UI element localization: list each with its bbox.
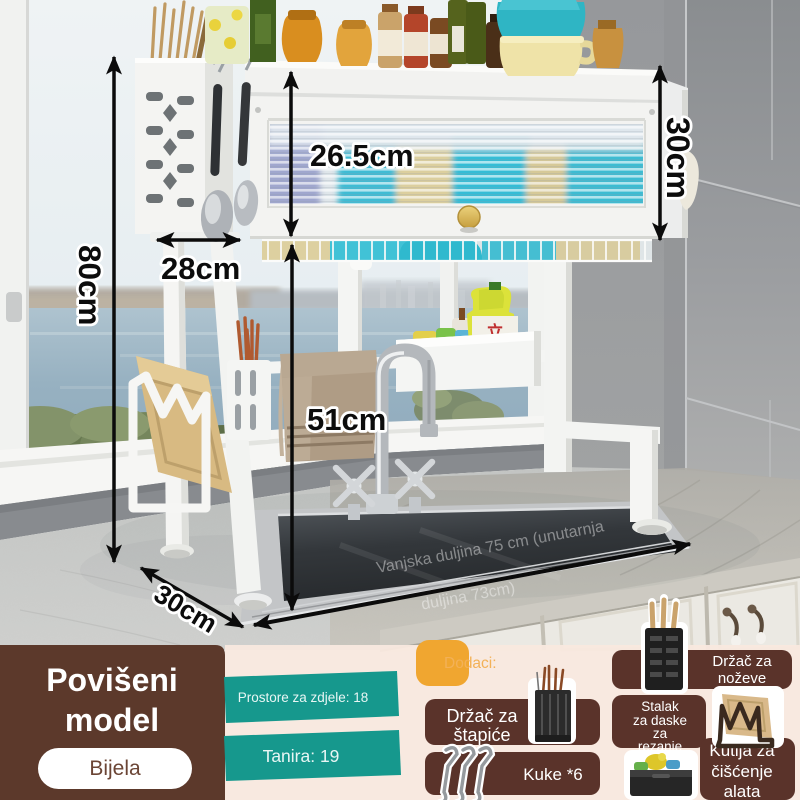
svg-text:model: model (65, 702, 159, 738)
svg-text:28cm: 28cm (161, 251, 240, 286)
svg-text:Stalak: Stalak (641, 699, 679, 714)
svg-text:80cm: 80cm (72, 245, 108, 326)
svg-text:Kuke *6: Kuke *6 (523, 765, 583, 784)
svg-text:26.5cm: 26.5cm (310, 139, 413, 173)
svg-text:čišćenje: čišćenje (711, 762, 772, 781)
svg-text:Dodaci:: Dodaci: (444, 655, 497, 672)
svg-text:Tanira: 19: Tanira: 19 (263, 746, 340, 766)
svg-text:alata: alata (724, 782, 761, 800)
svg-text:noževe: noževe (718, 670, 766, 687)
svg-text:51cm: 51cm (307, 402, 386, 437)
svg-text:Prostore za zdjele: 18: Prostore za zdjele: 18 (238, 690, 369, 705)
svg-text:Povišeni: Povišeni (46, 662, 178, 698)
svg-text:Držač za: Držač za (712, 653, 772, 670)
svg-text:Držač za: Držač za (446, 706, 518, 726)
svg-text:30cm: 30cm (660, 117, 696, 199)
svg-text:Bijela: Bijela (89, 757, 141, 780)
svg-text:štapiće: štapiće (453, 725, 510, 745)
